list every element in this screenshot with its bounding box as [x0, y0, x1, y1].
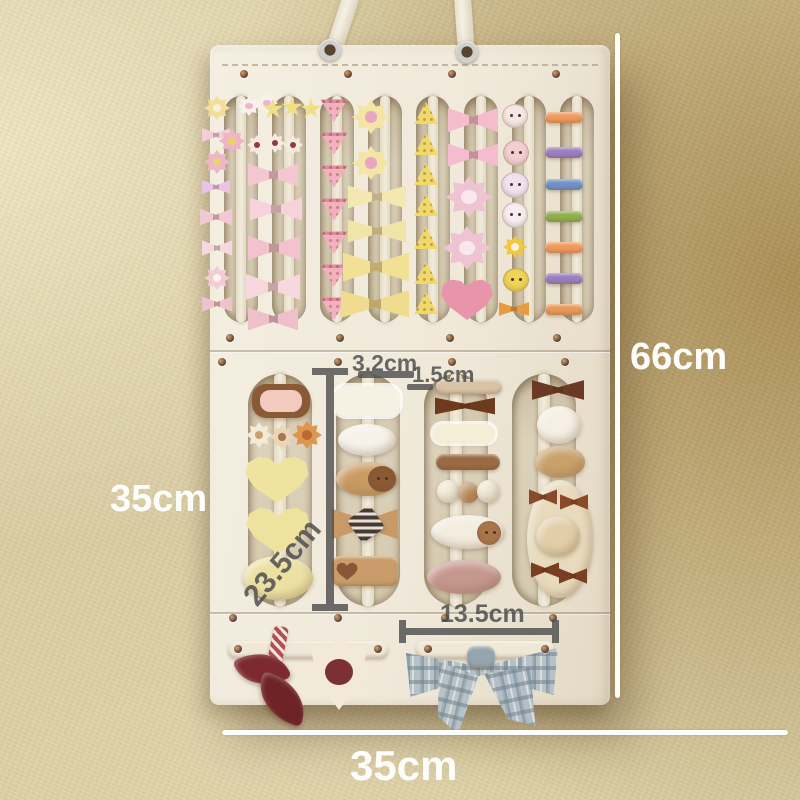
rivet-stud	[446, 334, 454, 342]
rivet-stud	[240, 70, 248, 78]
rivet-stud	[334, 614, 342, 622]
hair-clip-face	[368, 466, 396, 492]
hair-clip-bar	[545, 304, 583, 315]
hair-clip-face	[503, 268, 529, 292]
bottom-slot-width-ruler	[399, 620, 559, 643]
hair-clip-pom	[535, 446, 585, 478]
hair-clip-bar	[545, 179, 583, 190]
slot-center-strap	[572, 96, 582, 322]
hair-clip-face	[501, 172, 529, 198]
hair-clip-bar	[545, 242, 583, 253]
hair-clip-bar	[436, 454, 500, 470]
hair-clip-pom	[458, 482, 479, 503]
hair-clip-bar	[545, 147, 583, 158]
height-label: 66cm	[630, 336, 727, 379]
slat-gap-bar	[407, 384, 433, 390]
hair-clip-bar	[545, 273, 583, 284]
hair-clip-label: Smile☺	[433, 424, 495, 443]
hair-clip-bear	[252, 384, 310, 418]
rivet-stud	[561, 358, 569, 366]
hair-clip-flower	[247, 135, 267, 155]
rivet-stud	[344, 70, 352, 78]
hair-clip-flower	[265, 133, 285, 153]
hair-clip-pom	[437, 480, 460, 503]
hair-clip-bar	[467, 646, 495, 668]
metal-grommet	[456, 41, 478, 63]
hair-clip-pom	[536, 516, 580, 556]
rivet-stud	[553, 334, 561, 342]
stitch-line-top	[222, 64, 598, 66]
hair-clip-pom	[427, 560, 501, 594]
rivet-stud	[424, 645, 432, 653]
slat-width-bar	[358, 371, 414, 378]
hair-clip-face	[502, 202, 528, 228]
metal-grommet	[319, 39, 341, 61]
bottom-width-label: 35cm	[350, 742, 457, 790]
hair-clip-face	[502, 104, 528, 128]
rivet-stud	[374, 645, 382, 653]
slot-center-strap	[380, 96, 390, 322]
rivet-stud	[234, 645, 242, 653]
height-measure-line	[615, 33, 620, 698]
hair-clip-flower	[352, 146, 390, 180]
product-photo-scene: Bear♡LoveSmile☺ 66cm 35cm 35cm 3.2cm 1.5…	[0, 0, 800, 800]
rivet-stud	[334, 358, 342, 366]
hair-clip-pom	[537, 406, 581, 444]
hair-clip-face	[503, 140, 529, 166]
hair-clip-face	[477, 521, 501, 545]
rivet-stud	[448, 70, 456, 78]
side-width-label: 35cm	[110, 478, 207, 521]
hair-clip-flower	[443, 226, 491, 270]
hair-clip-flower	[283, 135, 303, 155]
rivet-stud	[552, 70, 560, 78]
rivet-stud	[218, 358, 226, 366]
slot-length-ruler	[312, 368, 348, 611]
hair-clip-pom	[477, 480, 500, 503]
slot-center-strap	[236, 96, 246, 322]
rivet-stud	[229, 614, 237, 622]
rivet-stud	[541, 645, 549, 653]
rivet-stud	[336, 334, 344, 342]
bottom-measure-line	[222, 730, 788, 735]
hair-clip-bar	[545, 112, 583, 123]
hair-clip-bar	[545, 211, 583, 222]
rivet-stud	[226, 334, 234, 342]
